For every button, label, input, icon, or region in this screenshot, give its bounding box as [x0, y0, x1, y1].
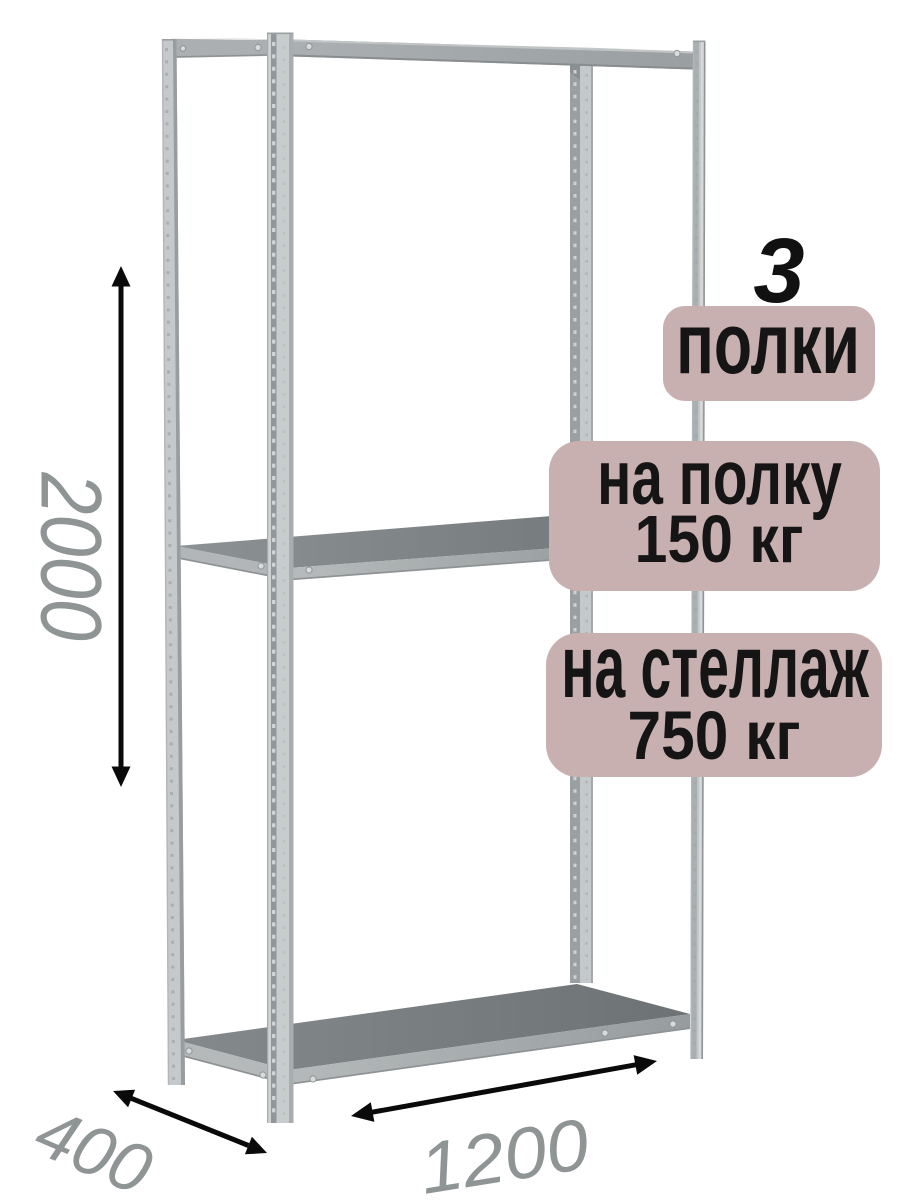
svg-text:400: 400 [25, 1092, 163, 1200]
svg-text:150 кг: 150 кг [635, 503, 804, 577]
svg-text:полки: полки [676, 295, 860, 391]
svg-text:1200: 1200 [414, 1103, 594, 1200]
svg-text:2000: 2000 [22, 471, 118, 640]
svg-text:750 кг: 750 кг [627, 696, 800, 774]
